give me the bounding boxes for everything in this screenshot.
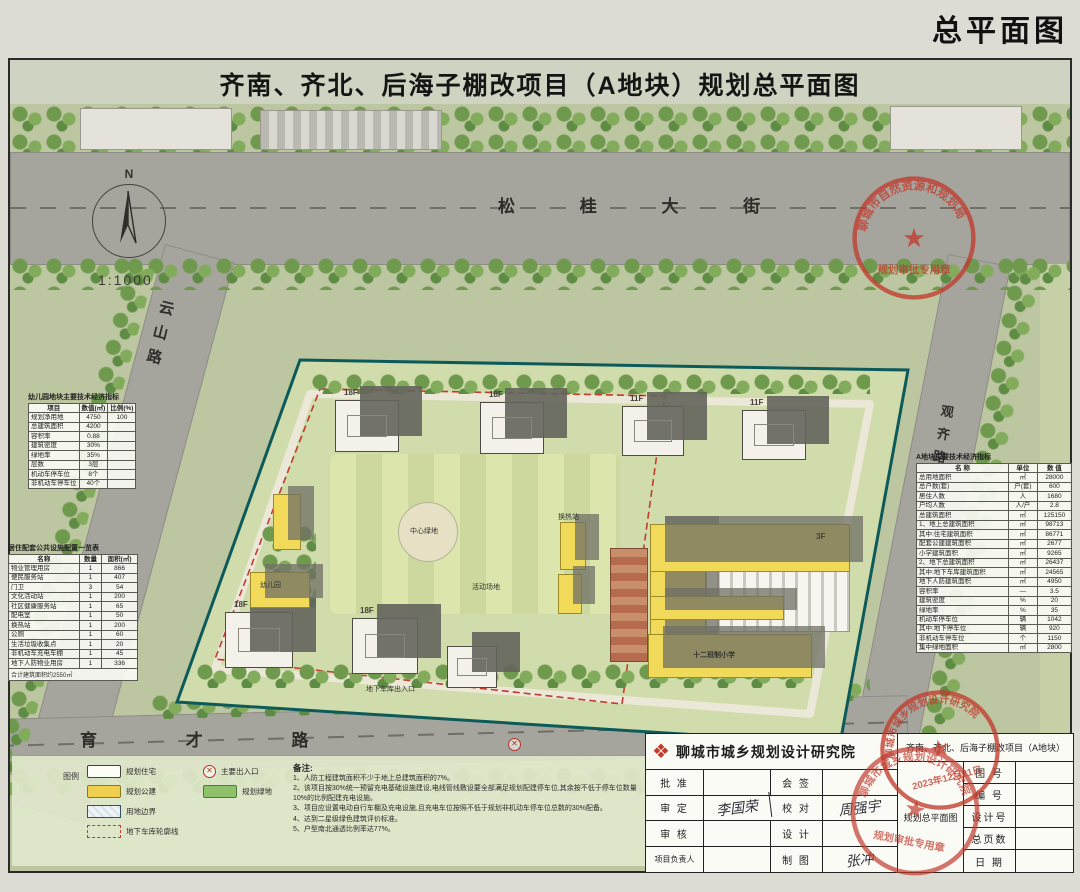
table-cell: 1、地上总建筑面积 (917, 520, 1009, 529)
kindergarten-indicators-panel: 幼儿园地块主要技术经济指标 项目数值(㎡)比例(%) 规划净用地4750100总… (28, 392, 132, 489)
table-cell: 100 (108, 413, 136, 422)
legend-label: 主要出入口 (221, 766, 259, 777)
table-cell: 1150 (1037, 634, 1071, 643)
table-cell: 非机动车停车位 (917, 634, 1009, 643)
field-value (1016, 784, 1073, 805)
table-cell: 9265 (1037, 549, 1071, 558)
table-row: 地下人防建筑面积㎡4950 (917, 577, 1072, 586)
table-row: 容积率—3.5 (917, 587, 1072, 596)
table-row: 绿地率%35 (917, 606, 1072, 615)
table-row: 建筑密度%20 (917, 596, 1072, 605)
table-cell: ㎡ (1009, 511, 1038, 520)
field-label: 审 核 (646, 821, 704, 846)
legend-title: 图例 (63, 771, 79, 782)
column-header: 单位 (1009, 464, 1038, 473)
field-label: 会 签 (771, 770, 823, 795)
table-cell: 1 (79, 621, 101, 630)
table-cell: 1680 (1037, 492, 1071, 501)
table-row: 文化活动站1200 (9, 592, 138, 601)
legend-item: 规划住宅 (87, 765, 179, 778)
table-row: 公厕160 (9, 630, 138, 639)
table-row: 配套公建建筑面积㎡2677 (917, 539, 1072, 548)
table-cell: 0.88 (79, 432, 108, 441)
tower-floor-label: 18F (489, 390, 503, 399)
table-cell: 65 (102, 602, 138, 611)
table-cell: 600 (1037, 482, 1071, 491)
column-header: 名 称 (917, 464, 1009, 473)
residential-tower-2 (480, 402, 544, 454)
table-cell: 2677 (1037, 539, 1071, 548)
table-cell: 户均人数 (917, 501, 1009, 510)
table-cell: ㎡ (1009, 643, 1038, 652)
table-cell (108, 432, 136, 441)
table-row: 便民服务站1407 (9, 573, 138, 582)
north-label: N (125, 167, 134, 181)
table-cell: 绿地率 (917, 606, 1009, 615)
table-row: 物业管理用房1866 (9, 564, 138, 573)
table-cell: 公厕 (9, 630, 80, 639)
table-cell: 集中绿地面积 (917, 643, 1009, 652)
table-cell: 总用地面积 (917, 473, 1009, 482)
institute-logo-icon: ❖ (652, 742, 670, 762)
note-line: 1、人防工程建筑面积不少于地上总建筑面积的7%。 (293, 774, 641, 784)
table-cell: 总户数(套) (917, 482, 1009, 491)
table-cell: 28000 (1037, 473, 1071, 482)
legend-label: 规划公建 (126, 786, 156, 797)
table-row: 集中绿地面积㎡2800 (917, 643, 1072, 652)
field-label: 批 准 (646, 770, 704, 795)
public-building-annex (273, 494, 301, 550)
table-cell: 1 (79, 592, 101, 601)
table-cell: 配电室 (9, 611, 80, 620)
table-cell: 98713 (1037, 520, 1071, 529)
table-row: 换热站1200 (9, 621, 138, 630)
table-cell: 30% (79, 441, 108, 450)
public-building-swatch-icon (87, 785, 121, 798)
school-floor-label: 3F (816, 532, 825, 541)
svg-text:规划审批专用章: 规划审批专用章 (877, 263, 951, 276)
garden-plots (610, 548, 648, 662)
table-row: 其中:地下车库建筑面积㎡24565 (917, 568, 1072, 577)
table-cell: 个 (1009, 634, 1038, 643)
table-cell: 1 (79, 659, 101, 668)
residential-tower-7 (447, 646, 497, 688)
table-row: 层数3层 (29, 460, 136, 469)
table-cell (108, 479, 136, 488)
table-cell: 门卫 (9, 583, 80, 592)
legend-item: 规划公建 (87, 785, 179, 798)
table-cell: 200 (102, 621, 138, 630)
tower-floor-label: 18F (234, 600, 248, 609)
table-cell: 20 (102, 640, 138, 649)
field-value (1016, 828, 1073, 849)
facilities-table-footer: 合计建筑面积约2550㎡ (8, 669, 138, 681)
table-cell: 200 (102, 592, 138, 601)
table-row: 总建筑面积4200 (29, 422, 136, 431)
column-header: 比例(%) (108, 404, 136, 413)
table-cell: 20 (1037, 596, 1071, 605)
entrance-swatch-icon: ✕ (203, 765, 216, 778)
kindergarten-building (250, 572, 310, 608)
scale-label: 1:1000 (98, 272, 153, 288)
table-row: 门卫354 (9, 583, 138, 592)
kindergarten-indicators-table: 项目数值(㎡)比例(%) 规划净用地4750100总建筑面积4200容积率0.8… (28, 403, 136, 489)
garage-entry-label: 地下车库出入口 (366, 684, 415, 694)
column-header: 数值(㎡) (79, 404, 108, 413)
table-cell: 1 (79, 640, 101, 649)
table-cell: 24565 (1037, 568, 1071, 577)
note-line: 4、达到二星级绿色建筑评价标准。 (293, 815, 641, 825)
table-cell: 3层 (79, 460, 108, 469)
residential-swatch-icon (87, 765, 121, 778)
table-cell: 居住人数 (917, 492, 1009, 501)
tower-floor-label: 11F (630, 394, 643, 403)
table-cell: 60 (102, 630, 138, 639)
table-cell: 人/户 (1009, 501, 1038, 510)
table-cell: 866 (102, 564, 138, 573)
table-cell: 2800 (1037, 643, 1071, 652)
table-row: 居住人数人1680 (917, 492, 1072, 501)
table-cell: 35% (79, 451, 108, 460)
column-header: 项目 (29, 404, 80, 413)
legend-item: ✕ 主要出入口 (203, 765, 272, 778)
table-cell: 机动车停车位 (29, 470, 80, 479)
table-cell (108, 422, 136, 431)
institute-stamp-2: 聊城市城乡规划设计研究院 ★ 规划审批专用章 (834, 730, 996, 892)
facilities-panel: 居住配套公共设施配置一览表 名称数量面积(㎡) 物业管理用房1866便民服务站1… (8, 543, 138, 681)
field-label: 设 计 (771, 821, 823, 846)
field-value (1016, 762, 1073, 783)
stamp-star-icon: ★ (901, 794, 929, 826)
table-cell: 40个 (79, 479, 108, 488)
table-cell: 建筑密度 (29, 441, 80, 450)
table-cell: 4950 (1037, 577, 1071, 586)
table-cell: 其中:地下停车位 (917, 624, 1009, 633)
sheet-title: 齐南、齐北、后海子棚改项目（A地块）规划总平面图 (10, 66, 1070, 102)
table-cell: 地下人防建筑面积 (917, 577, 1009, 586)
page-corner-title: 总平面图 (932, 6, 1068, 50)
table-cell: 地下人防物业用房 (9, 659, 80, 668)
table-cell (108, 460, 136, 469)
field-label: 审 定 (646, 796, 704, 821)
column-header: 面积(㎡) (102, 555, 138, 564)
table-row: 其中:地下停车位辆920 (917, 624, 1072, 633)
table-cell: ㎡ (1009, 549, 1038, 558)
table-cell: % (1009, 596, 1038, 605)
central-green-label: 中心绿地 (410, 526, 438, 536)
tower-floor-label: 18F (360, 606, 374, 615)
table-cell: 其中:住宅建筑面积 (917, 530, 1009, 539)
table-row: 建筑密度30% (29, 441, 136, 450)
table-cell: 54 (102, 583, 138, 592)
table-cell: ㎡ (1009, 520, 1038, 529)
table-cell: 总建筑面积 (29, 422, 80, 431)
field-value (704, 770, 771, 795)
road-label-songgui: 松 桂 大 街 (498, 192, 790, 217)
heat-station-building (560, 522, 586, 570)
table-row: 配电室150 (9, 611, 138, 620)
indicators-panel: A地块主要技术经济指标 名 称单位数 值 总用地面积㎡28000总户数(套)户(… (916, 452, 1072, 653)
table-row: 非机动车停车位个1150 (917, 634, 1072, 643)
table-cell: 336 (102, 659, 138, 668)
table-cell: 文化活动站 (9, 592, 80, 601)
field-value (704, 821, 771, 846)
residential-tower-6 (352, 618, 418, 674)
legend-label: 规划绿地 (242, 786, 272, 797)
table-cell: ㎡ (1009, 473, 1038, 482)
table-cell (108, 451, 136, 460)
planning-bureau-stamp: 聊城市自然资源和规划局 ★ 规划审批专用章 (848, 172, 980, 304)
note-line: 2、该项目按30%统一预留充电基础设施建设,电线管线敷设要全部满足规划配建停车位… (293, 784, 641, 804)
table-row: 户均人数人/户2.8 (917, 501, 1072, 510)
note-line: 3、项目应设置电动自行车棚及充电设施,且充电车位按照不低于规划非机动车停车位总数… (293, 804, 641, 814)
field-label: 制 图 (771, 847, 823, 873)
indicators-table: 名 称单位数 值 总用地面积㎡28000总户数(套)户(套)600居住人数人16… (916, 463, 1072, 653)
table-cell: 社区健康服务站 (9, 602, 80, 611)
legend-item: 用地边界 (87, 805, 179, 818)
table-cell: — (1009, 587, 1038, 596)
table-cell: 1 (79, 602, 101, 611)
table-cell: 户(套) (1009, 482, 1038, 491)
residential-tower-1 (335, 400, 399, 452)
table-row: 绿地率35% (29, 451, 136, 460)
table-cell: 3.5 (1037, 587, 1071, 596)
table-cell: 50 (102, 611, 138, 620)
table-cell: 便民服务站 (9, 573, 80, 582)
table-row: 总用地面积㎡28000 (917, 473, 1072, 482)
legend-item: 规划绿地 (203, 785, 272, 798)
public-building-annex (558, 574, 582, 614)
table-cell: 建筑密度 (917, 596, 1009, 605)
table-cell: 总建筑面积 (917, 511, 1009, 520)
table-cell: 2、地下总建筑面积 (917, 558, 1009, 567)
column-header: 数 值 (1037, 464, 1071, 473)
table-cell (108, 470, 136, 479)
field-label: 校 对 (771, 796, 823, 821)
green-space-swatch-icon (203, 785, 237, 798)
scanned-site-plan-page: { "page": { "corner_title": "总平面图" }, "s… (0, 0, 1080, 877)
table-row: 总建筑面积㎡125150 (917, 511, 1072, 520)
svg-text:规划审批专用章: 规划审批专用章 (872, 828, 946, 855)
tower-floor-label: 11F (750, 398, 763, 407)
main-entrance-icon: ✕ (508, 738, 521, 751)
table-cell: 辆 (1009, 615, 1038, 624)
table-cell: 45 (102, 649, 138, 658)
legend-item: 地下车库轮廓线 (87, 825, 179, 838)
residential-tower-5 (225, 612, 293, 668)
column-header: 名称 (9, 555, 80, 564)
north-compass: N (92, 184, 166, 258)
legend-label: 规划住宅 (126, 766, 156, 777)
road-label-yucai: 育 才 路 (80, 726, 350, 751)
residential-tower-3 (622, 406, 684, 456)
boundary-swatch-icon (87, 805, 121, 818)
institute-name: 聊城市城乡规划设计研究院 (676, 742, 856, 762)
table-cell: ㎡ (1009, 568, 1038, 577)
table-cell: 920 (1037, 624, 1071, 633)
school-middle-wing (650, 596, 784, 620)
table-cell (108, 441, 136, 450)
north-arrow-icon (93, 185, 163, 255)
residential-tower-4 (742, 410, 806, 460)
table-row: 小学建筑面积㎡9265 (917, 549, 1072, 558)
table-cell: ㎡ (1009, 558, 1038, 567)
kindergarten-label: 幼儿园 (260, 580, 281, 590)
table-cell: 8个 (79, 470, 108, 479)
table-cell: 人 (1009, 492, 1038, 501)
column-header: 数量 (79, 555, 101, 564)
signature: 李国荣 (703, 792, 772, 824)
garage-outline-swatch-icon (87, 825, 121, 838)
table-cell: 非机动车充电车棚 (9, 649, 80, 658)
table-cell: 换热站 (9, 621, 80, 630)
table-cell: 26437 (1037, 558, 1071, 567)
table-row: 社区健康服务站165 (9, 602, 138, 611)
table-row: 规划净用地4750100 (29, 413, 136, 422)
table-cell: 1 (79, 564, 101, 573)
table-row: 地下人防物业用房1336 (9, 659, 138, 668)
table-cell: 生活垃圾收集点 (9, 640, 80, 649)
table-cell: 规划净用地 (29, 413, 80, 422)
table-cell: 1 (79, 573, 101, 582)
table-cell: 容积率 (29, 432, 80, 441)
table-cell: 125150 (1037, 511, 1071, 520)
table-cell: 容积率 (917, 587, 1009, 596)
table-cell: 小学建筑面积 (917, 549, 1009, 558)
kindergarten-table-title: 幼儿园地块主要技术经济指标 (28, 392, 132, 402)
table-row: 容积率0.88 (29, 432, 136, 441)
table-cell: 机动车停车位 (917, 615, 1009, 624)
legend-label: 用地边界 (126, 806, 156, 817)
table-row: 2、地下总建筑面积㎡26437 (917, 558, 1072, 567)
table-cell: 配套公建建筑面积 (917, 539, 1009, 548)
table-row: 总户数(套)户(套)600 (917, 482, 1072, 491)
notes-title: 备注: (293, 762, 641, 774)
heat-station-label: 换热站 (558, 512, 579, 522)
table-cell: % (1009, 606, 1038, 615)
field-value (1016, 806, 1073, 827)
field-value (1016, 850, 1073, 872)
legend-label: 地下车库轮廓线 (126, 826, 179, 837)
facilities-table-title: 居住配套公共设施配置一览表 (8, 543, 138, 553)
stamp-star-icon: ★ (902, 223, 926, 253)
table-row: 1、地上总建筑面积㎡98713 (917, 520, 1072, 529)
table-row: 非机动车停车位40个 (29, 479, 136, 488)
table-cell: 86771 (1037, 530, 1071, 539)
table-cell: 1 (79, 649, 101, 658)
table-row: 非机动车充电车棚145 (9, 649, 138, 658)
table-row: 生活垃圾收集点120 (9, 640, 138, 649)
table-cell: 1042 (1037, 615, 1071, 624)
facilities-table: 名称数量面积(㎡) 物业管理用房1866便民服务站1407门卫354文化活动站1… (8, 554, 138, 669)
table-cell: 绿地率 (29, 451, 80, 460)
tower-floor-label: 18F (344, 388, 358, 397)
table-cell: ㎡ (1009, 577, 1038, 586)
table-cell: 4200 (79, 422, 108, 431)
table-cell: 407 (102, 573, 138, 582)
table-cell: ㎡ (1009, 539, 1038, 548)
table-cell: 4750 (79, 413, 108, 422)
table-row: 机动车停车位辆1042 (917, 615, 1072, 624)
field-label: 项目负责人 (646, 847, 704, 873)
table-cell: 其中:地下车库建筑面积 (917, 568, 1009, 577)
table-cell: 层数 (29, 460, 80, 469)
table-cell: 物业管理用房 (9, 564, 80, 573)
table-cell: 2.8 (1037, 501, 1071, 510)
note-line: 5、户型南北通透比例率达77%。 (293, 825, 641, 835)
activity-label: 活动场地 (472, 582, 500, 592)
notes: 备注: 1、人防工程建筑面积不少于地上总建筑面积的7%。2、该项目按30%统一预… (293, 762, 641, 835)
table-cell: ㎡ (1009, 530, 1038, 539)
table-cell: 辆 (1009, 624, 1038, 633)
table-cell: 1 (79, 611, 101, 620)
table-cell: 35 (1037, 606, 1071, 615)
table-cell: 非机动车停车位 (29, 479, 80, 488)
school-label: 十二班制小学 (693, 650, 735, 660)
table-row: 其中:住宅建筑面积㎡86771 (917, 530, 1072, 539)
table-cell: 1 (79, 630, 101, 639)
table-row: 机动车停车位8个 (29, 470, 136, 479)
field-value (704, 847, 771, 873)
table-cell: 3 (79, 583, 101, 592)
indicators-table-title: A地块主要技术经济指标 (916, 452, 1072, 462)
